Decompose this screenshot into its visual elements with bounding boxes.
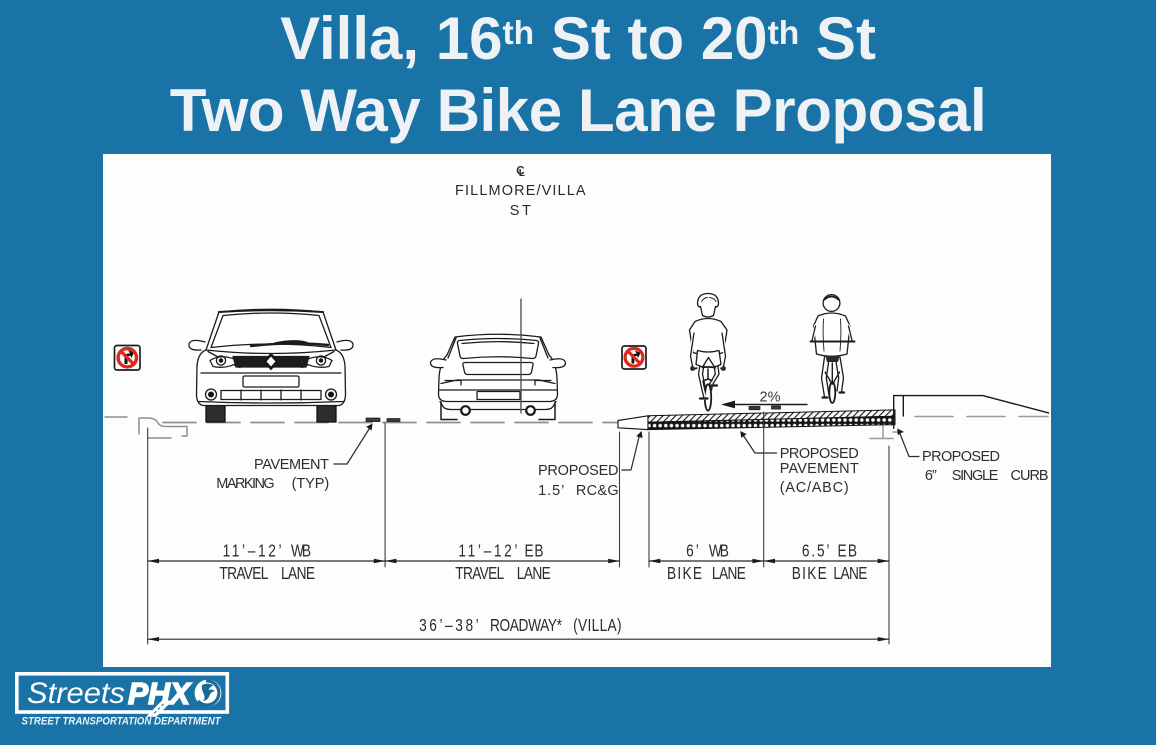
svg-text:(AC/ABC): (AC/ABC) — [780, 480, 849, 496]
svg-text:LANE: LANE — [517, 564, 551, 583]
svg-text:MARKING: MARKING — [216, 476, 274, 492]
svg-text:SINGLE: SINGLE — [952, 468, 999, 484]
svg-text:11’–12’: 11’–12’ — [458, 542, 517, 561]
svg-text:PAVEMENT: PAVEMENT — [780, 461, 859, 477]
svg-text:(TYP): (TYP) — [292, 476, 330, 492]
svg-text:11’–12’: 11’–12’ — [223, 542, 282, 561]
svg-text:TRAVEL: TRAVEL — [219, 564, 268, 583]
svg-text:2%: 2% — [760, 390, 781, 406]
svg-text:1.5’: 1.5’ — [538, 483, 564, 499]
svg-text:EB: EB — [838, 542, 857, 561]
svg-text:Streets: Streets — [27, 677, 125, 710]
svg-text:RC&G: RC&G — [576, 483, 619, 499]
svg-text:CURB: CURB — [1011, 468, 1049, 484]
svg-text:36’–38’: 36’–38’ — [419, 616, 479, 635]
svg-text:PROPOSED: PROPOSED — [780, 446, 859, 462]
svg-text:PROPOSED: PROPOSED — [538, 463, 619, 479]
svg-text:WB: WB — [291, 542, 311, 561]
svg-text:ROADWAY*: ROADWAY* — [490, 616, 562, 635]
svg-text:WB: WB — [709, 542, 729, 561]
svg-text:FILLMORE/VILLA: FILLMORE/VILLA — [455, 183, 586, 199]
svg-text:6’: 6’ — [686, 542, 699, 561]
svg-text:LANE: LANE — [712, 564, 746, 583]
svg-text:6”: 6” — [925, 468, 937, 484]
svg-text:LANE: LANE — [833, 564, 867, 583]
svg-text:STREET TRANSPORTATION DEPARTME: STREET TRANSPORTATION DEPARTMENT — [22, 716, 222, 728]
svg-text:TRAVEL: TRAVEL — [455, 564, 504, 583]
svg-text:BIKE: BIKE — [792, 564, 827, 583]
svg-text:PROPOSED: PROPOSED — [922, 449, 1000, 465]
svg-text:BIKE: BIKE — [667, 564, 702, 583]
svg-text:L: L — [519, 168, 525, 179]
svg-text:6.5’: 6.5’ — [802, 542, 829, 561]
svg-text:LANE: LANE — [281, 564, 315, 583]
svg-text:ST: ST — [510, 203, 531, 219]
svg-text:(VILLA): (VILLA) — [573, 616, 621, 635]
svg-text:EB: EB — [524, 542, 543, 561]
svg-text:PAVEMENT: PAVEMENT — [254, 457, 329, 473]
